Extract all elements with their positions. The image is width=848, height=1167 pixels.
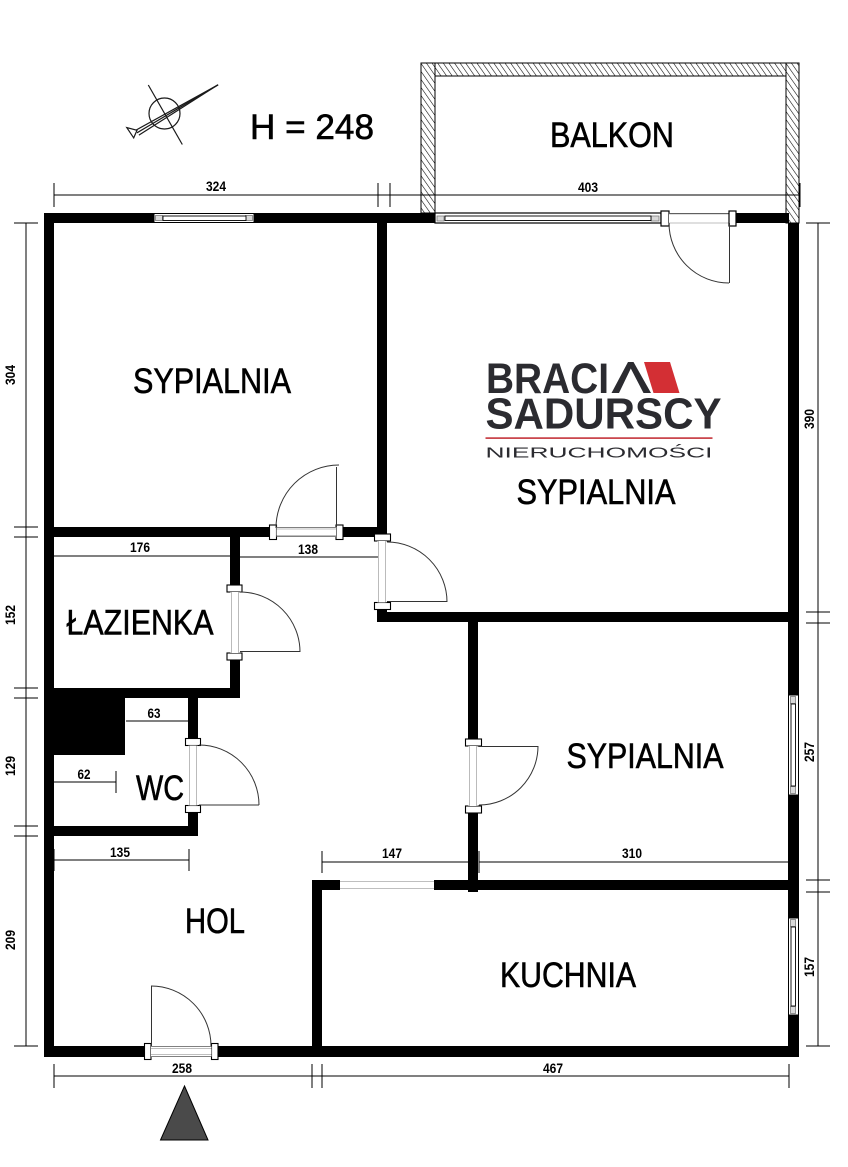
svg-text:SADURSCY: SADURSCY xyxy=(486,391,722,439)
svg-text:BALKON: BALKON xyxy=(550,116,674,155)
svg-text:390: 390 xyxy=(801,409,817,429)
svg-text:SYPIALNIA: SYPIALNIA xyxy=(517,473,677,512)
svg-text:152: 152 xyxy=(2,605,18,625)
svg-text:258: 258 xyxy=(172,1060,192,1076)
svg-text:62: 62 xyxy=(78,766,91,782)
svg-text:209: 209 xyxy=(2,930,18,950)
svg-text:310: 310 xyxy=(622,845,642,861)
svg-text:63: 63 xyxy=(148,705,161,721)
svg-text:176: 176 xyxy=(130,539,150,555)
svg-text:WC: WC xyxy=(136,769,184,808)
svg-text:HOL: HOL xyxy=(185,902,245,941)
svg-text:KUCHNIA: KUCHNIA xyxy=(500,956,637,995)
svg-text:H = 248: H = 248 xyxy=(250,108,374,147)
svg-text:NIERUCHOMOŚCI: NIERUCHOMOŚCI xyxy=(486,444,713,462)
svg-text:147: 147 xyxy=(382,845,402,861)
svg-text:135: 135 xyxy=(110,844,130,860)
svg-text:257: 257 xyxy=(801,742,817,762)
svg-text:324: 324 xyxy=(206,178,226,194)
svg-text:SYPIALNIA: SYPIALNIA xyxy=(133,362,292,401)
svg-text:138: 138 xyxy=(298,541,318,557)
svg-text:SYPIALNIA: SYPIALNIA xyxy=(567,737,725,776)
svg-text:ŁAZIENKA: ŁAZIENKA xyxy=(67,604,215,643)
svg-text:157: 157 xyxy=(801,957,817,977)
svg-text:467: 467 xyxy=(543,1060,563,1076)
svg-text:304: 304 xyxy=(2,365,18,385)
svg-text:129: 129 xyxy=(2,756,18,776)
svg-text:403: 403 xyxy=(578,179,598,195)
